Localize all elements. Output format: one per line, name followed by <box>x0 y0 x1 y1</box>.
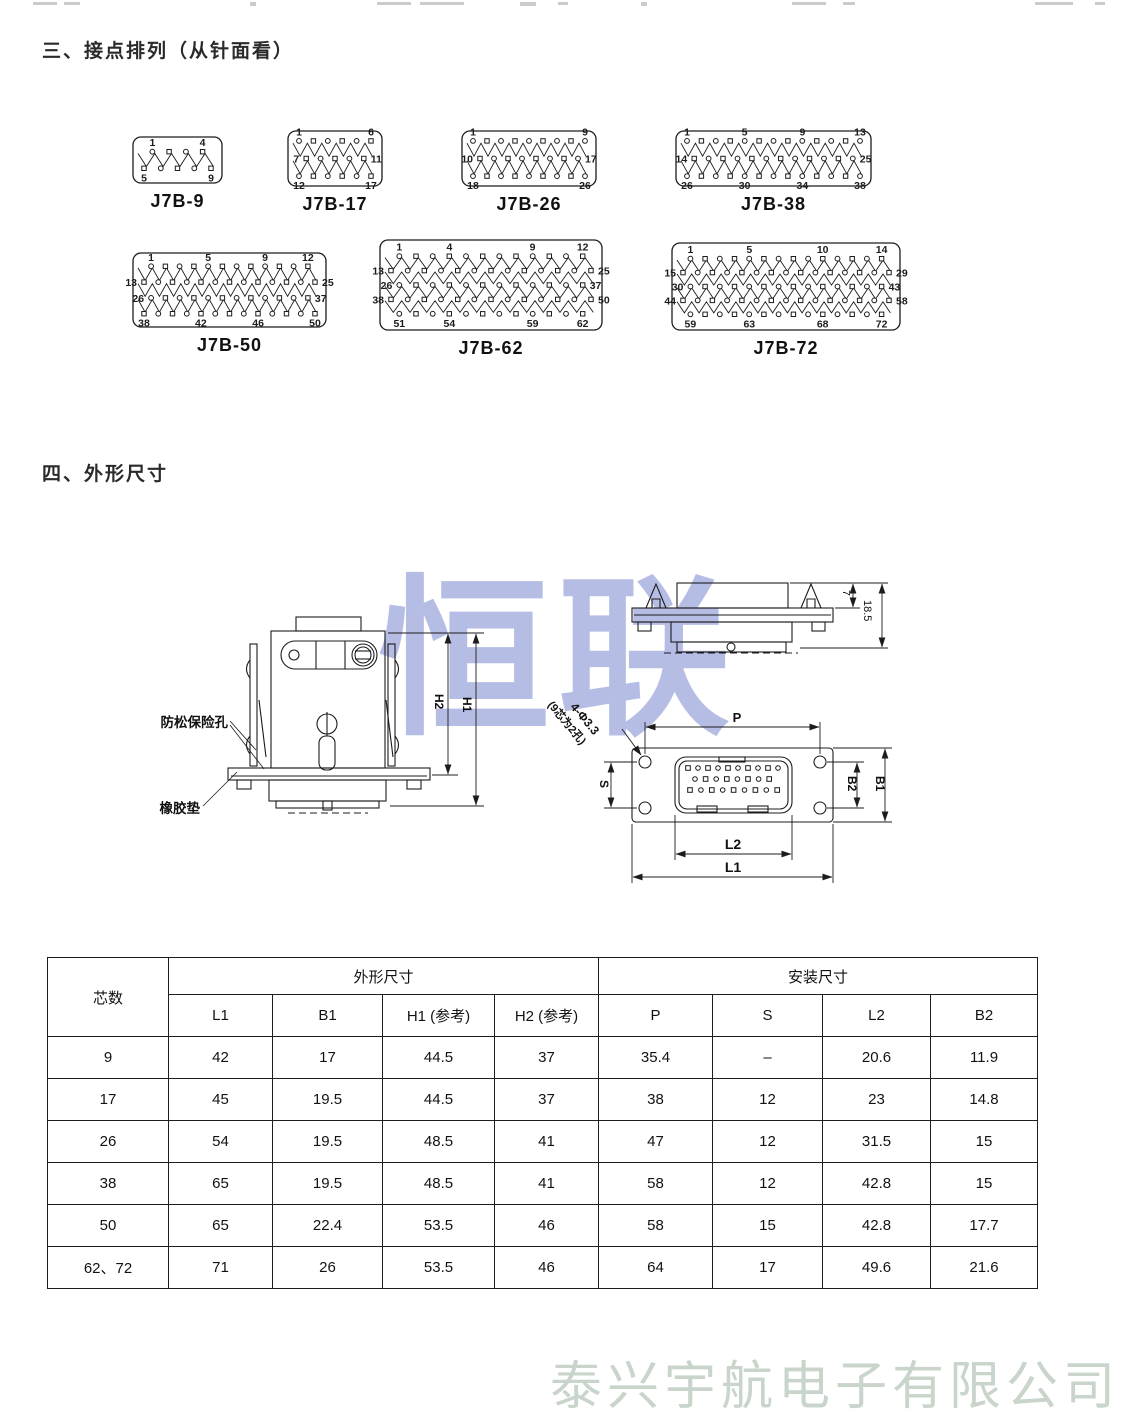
section-title-outline-dimensions: 四、外形尺寸 <box>42 459 168 486</box>
dim-label-clip-height: 7 <box>840 590 852 596</box>
svg-text:J7B-9: J7B-9 <box>150 191 204 211</box>
dim-label-b1: B1 <box>873 776 887 792</box>
svg-text:10: 10 <box>817 244 829 256</box>
front-view-leader-lines <box>203 721 264 806</box>
svg-text:J7B-26: J7B-26 <box>496 194 561 214</box>
dim-label-h1: H1 <box>460 697 474 713</box>
table-cell: 17.7 <box>931 1205 1038 1247</box>
svg-text:5: 5 <box>746 244 752 256</box>
front-label-rubber-pad: 橡胶垫 <box>160 800 201 816</box>
svg-text:26: 26 <box>381 280 393 292</box>
svg-text:30: 30 <box>739 180 751 192</box>
table-cell: 53.5 <box>383 1247 495 1289</box>
svg-text:14: 14 <box>676 154 688 166</box>
svg-text:25: 25 <box>598 266 610 278</box>
svg-text:42: 42 <box>195 318 207 330</box>
col-header-h2: H2 (参考) <box>495 995 599 1037</box>
svg-text:38: 38 <box>854 180 866 192</box>
table-cell: – <box>713 1037 823 1079</box>
svg-text:1: 1 <box>148 252 154 264</box>
table-cell: 58 <box>599 1163 713 1205</box>
table-cell: 46 <box>495 1247 599 1289</box>
table-cell: 22.4 <box>273 1205 383 1247</box>
table-cell: 48.5 <box>383 1163 495 1205</box>
svg-text:1: 1 <box>396 242 402 254</box>
dim-label-18-5: 18.5 <box>861 600 873 621</box>
connector-diagram-J7B-72: 15101415293043445859636872J7B-72 <box>658 229 914 362</box>
col-header-h1: H1 (参考) <box>383 995 495 1037</box>
connector-diagram-J7B-50: 159121325263738424650J7B-50 <box>119 239 340 359</box>
table-row: 62、72712653.546641749.621.6 <box>48 1247 1038 1289</box>
svg-text:12: 12 <box>293 180 305 192</box>
svg-text:38: 38 <box>372 294 384 306</box>
svg-text:9: 9 <box>208 172 214 184</box>
table-cell: 42 <box>169 1037 273 1079</box>
table-cell: 9 <box>48 1037 169 1079</box>
table-cell: 12 <box>713 1079 823 1121</box>
svg-text:18: 18 <box>467 180 479 192</box>
table-cell: 21.6 <box>931 1247 1038 1289</box>
table-cell: 17 <box>713 1247 823 1289</box>
connector-diagram-J7B-38: 15913142526303438J7B-38 <box>662 117 885 218</box>
svg-text:J7B-72: J7B-72 <box>753 338 818 358</box>
table-cell: 15 <box>931 1121 1038 1163</box>
svg-text:68: 68 <box>817 318 829 330</box>
svg-text:26: 26 <box>681 180 693 192</box>
svg-text:5: 5 <box>205 252 211 264</box>
svg-text:12: 12 <box>302 252 314 264</box>
svg-text:63: 63 <box>743 318 755 330</box>
table-cell: 19.5 <box>273 1121 383 1163</box>
col-header-l2: L2 <box>823 995 931 1037</box>
svg-text:43: 43 <box>889 282 901 294</box>
svg-text:26: 26 <box>579 180 591 192</box>
section-title-contact-arrangement: 三、接点排列（从针面看） <box>42 36 294 63</box>
col-header-p: P <box>599 995 713 1037</box>
col-header-b1: B1 <box>273 995 383 1037</box>
svg-text:7: 7 <box>293 154 299 166</box>
svg-text:25: 25 <box>322 277 334 289</box>
table-cell: 17 <box>48 1079 169 1121</box>
col-header-cores: 芯数 <box>48 958 169 1037</box>
svg-text:38: 38 <box>138 318 150 330</box>
svg-text:44: 44 <box>664 295 676 307</box>
svg-text:9: 9 <box>799 126 805 138</box>
svg-text:14: 14 <box>876 244 888 256</box>
svg-text:5: 5 <box>742 126 748 138</box>
table-cell: 54 <box>169 1121 273 1163</box>
mounting-face-drawing <box>632 748 833 822</box>
table-row: 506522.453.546581542.817.7 <box>48 1205 1038 1247</box>
table-cell: 12 <box>713 1163 823 1205</box>
svg-text:58: 58 <box>896 295 908 307</box>
svg-text:11: 11 <box>371 154 382 166</box>
svg-text:10: 10 <box>461 154 473 166</box>
svg-text:54: 54 <box>444 318 456 330</box>
side-view-drawing <box>632 583 833 653</box>
face-view-pins <box>686 766 781 793</box>
outline-dimension-drawings: 防松保险孔 橡胶垫 H2 H1 7 18.5 <box>100 565 1010 895</box>
company-watermark-footer: 泰兴宇航电子有限公司 <box>550 1344 1120 1419</box>
table-row: 174519.544.53738122314.8 <box>48 1079 1038 1121</box>
svg-text:17: 17 <box>585 154 597 166</box>
svg-text:46: 46 <box>252 318 264 330</box>
group-header-outline: 外形尺寸 <box>169 958 599 995</box>
table-cell: 62、72 <box>48 1247 169 1289</box>
dim-label-l2: L2 <box>725 836 742 852</box>
table-cell: 17 <box>273 1037 383 1079</box>
col-header-l1: L1 <box>169 995 273 1037</box>
svg-text:62: 62 <box>577 318 589 330</box>
table-cell: 35.4 <box>599 1037 713 1079</box>
table-cell: 65 <box>169 1205 273 1247</box>
table-cell: 44.5 <box>383 1079 495 1121</box>
hole-size-annotation: 4-Φ3.3 (9芯为2孔) <box>545 688 602 748</box>
dim-label-l1: L1 <box>725 859 742 875</box>
dim-label-s: S <box>597 780 611 788</box>
table-cell: 49.6 <box>823 1247 931 1289</box>
svg-text:4: 4 <box>200 137 206 149</box>
connector-diagram-J7B-17: 167111217J7B-17 <box>274 117 396 218</box>
svg-text:25: 25 <box>860 154 872 166</box>
col-header-b2: B2 <box>931 995 1038 1037</box>
svg-text:13: 13 <box>372 266 384 278</box>
table-cell: 31.5 <box>823 1121 931 1163</box>
table-cell: 12 <box>713 1121 823 1163</box>
svg-text:13: 13 <box>854 126 866 138</box>
table-cell: 71 <box>169 1247 273 1289</box>
table-row: 265419.548.541471231.515 <box>48 1121 1038 1163</box>
table-cell: 41 <box>495 1163 599 1205</box>
table-cell: 58 <box>599 1205 713 1247</box>
table-cell: 42.8 <box>823 1205 931 1247</box>
svg-text:6: 6 <box>368 126 374 138</box>
dim-label-h2: H2 <box>432 694 446 710</box>
front-view-drawing <box>228 617 430 813</box>
table-cell: 38 <box>48 1163 169 1205</box>
col-header-s: S <box>713 995 823 1037</box>
table-cell: 48.5 <box>383 1121 495 1163</box>
dimension-table-grid: 芯数 外形尺寸 安装尺寸 L1 B1 H1 (参考) H2 (参考) P S L… <box>47 957 1038 1289</box>
dim-label-b2: B2 <box>845 776 859 792</box>
table-cell: 42.8 <box>823 1163 931 1205</box>
table-cell: 47 <box>599 1121 713 1163</box>
svg-text:29: 29 <box>896 268 908 280</box>
table-cell: 19.5 <box>273 1163 383 1205</box>
svg-text:9: 9 <box>530 242 536 254</box>
table-cell: 50 <box>48 1205 169 1247</box>
svg-text:J7B-62: J7B-62 <box>458 338 523 358</box>
connector-diagram-J7B-26: 1910171826J7B-26 <box>448 117 610 218</box>
svg-text:34: 34 <box>797 180 809 192</box>
svg-text:J7B-50: J7B-50 <box>197 335 262 355</box>
group-header-mount: 安装尺寸 <box>599 958 1038 995</box>
front-label-lock-hole: 防松保险孔 <box>161 714 229 730</box>
svg-text:50: 50 <box>598 294 610 306</box>
table-cell: 26 <box>48 1121 169 1163</box>
svg-text:37: 37 <box>590 280 602 292</box>
svg-text:1: 1 <box>296 126 302 138</box>
svg-text:50: 50 <box>309 318 321 330</box>
table-cell: 46 <box>495 1205 599 1247</box>
table-cell: 37 <box>495 1037 599 1079</box>
table-cell: 41 <box>495 1121 599 1163</box>
svg-text:13: 13 <box>125 277 137 289</box>
svg-text:1: 1 <box>149 137 155 149</box>
svg-text:37: 37 <box>315 293 327 305</box>
svg-text:J7B-17: J7B-17 <box>302 194 367 214</box>
svg-text:1: 1 <box>470 126 476 138</box>
svg-text:30: 30 <box>672 282 684 294</box>
svg-text:1: 1 <box>687 244 693 256</box>
svg-text:51: 51 <box>393 318 405 330</box>
svg-text:J7B-38: J7B-38 <box>741 194 806 214</box>
svg-text:26: 26 <box>132 293 144 305</box>
table-cell: 11.9 <box>931 1037 1038 1079</box>
svg-text:15: 15 <box>664 268 676 280</box>
datasheet-page: 三、接点排列（从针面看） 1459J7B-9167111217J7B-17191… <box>0 0 1121 1424</box>
svg-text:59: 59 <box>685 318 697 330</box>
table-cell: 64 <box>599 1247 713 1289</box>
svg-text:72: 72 <box>876 318 888 330</box>
truncated-text-fragments <box>0 0 1121 10</box>
svg-text:5: 5 <box>141 172 147 184</box>
table-cell: 44.5 <box>383 1037 495 1079</box>
svg-text:17: 17 <box>365 180 377 192</box>
table-cell: 23 <box>823 1079 931 1121</box>
svg-text:59: 59 <box>527 318 539 330</box>
table-cell: 65 <box>169 1163 273 1205</box>
connector-diagram-J7B-62: 1491213252637385051545962J7B-62 <box>366 226 616 362</box>
table-cell: 37 <box>495 1079 599 1121</box>
svg-text:9: 9 <box>582 126 588 138</box>
table-row: 386519.548.541581242.815 <box>48 1163 1038 1205</box>
svg-text:9: 9 <box>262 252 268 264</box>
table-cell: 15 <box>931 1163 1038 1205</box>
table-cell: 15 <box>713 1205 823 1247</box>
svg-text:1: 1 <box>684 126 690 138</box>
table-cell: 45 <box>169 1079 273 1121</box>
dim-label-p: P <box>733 710 742 725</box>
svg-text:4: 4 <box>446 242 452 254</box>
svg-text:12: 12 <box>577 242 589 254</box>
table-cell: 14.8 <box>931 1079 1038 1121</box>
connector-diagram-J7B-9: 1459J7B-9 <box>119 123 236 215</box>
dimension-table: 芯数 外形尺寸 安装尺寸 L1 B1 H1 (参考) H2 (参考) P S L… <box>47 957 1038 1289</box>
table-cell: 38 <box>599 1079 713 1121</box>
table-cell: 19.5 <box>273 1079 383 1121</box>
table-cell: 53.5 <box>383 1205 495 1247</box>
table-cell: 26 <box>273 1247 383 1289</box>
table-cell: 20.6 <box>823 1037 931 1079</box>
table-row: 9421744.53735.4–20.611.9 <box>48 1037 1038 1079</box>
